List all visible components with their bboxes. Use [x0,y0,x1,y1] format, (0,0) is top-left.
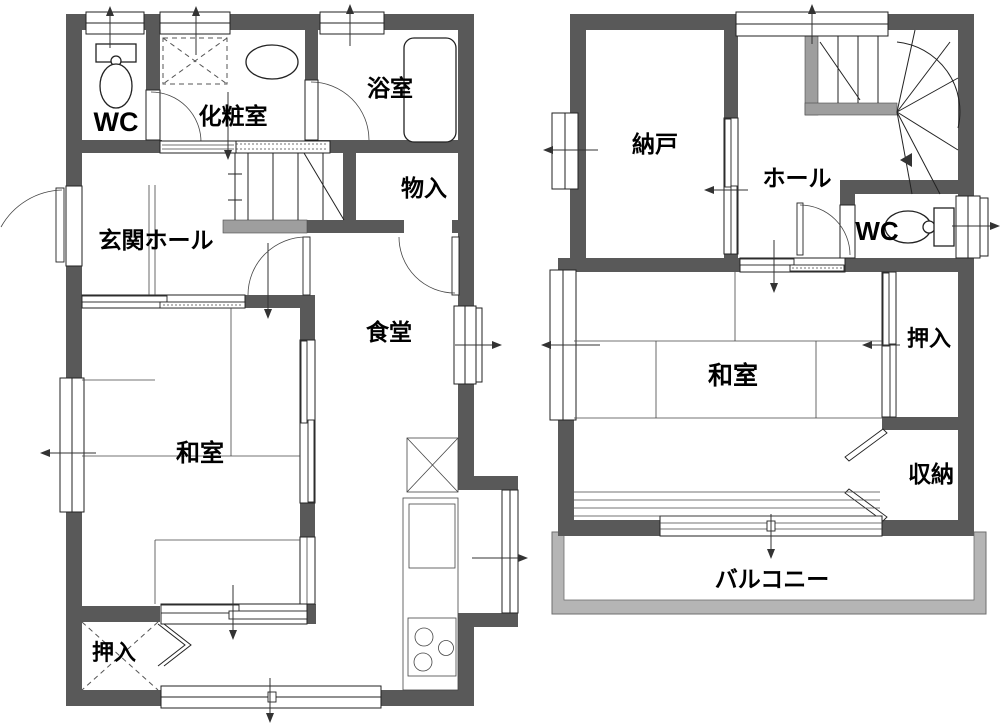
toilet-icon-1f [96,44,136,108]
wc-door-1f [146,90,201,142]
entrance-door [1,186,82,266]
storage-double-door-2f [845,429,887,521]
washitsu-south-sliding [161,604,307,624]
hall-washitsu-sliding-2f [740,258,845,272]
wc-door-2f [797,203,855,258]
room-label-wc-2f: WC [855,216,899,246]
storeroom-sliding-door [724,118,738,254]
room-label-japanese-room-1f: 和室 [176,439,224,467]
sink-icon [246,45,298,79]
bathroom-window [320,12,384,34]
wc-window-2f [956,196,988,258]
hall-washitsu-sliding [82,295,245,308]
refrigerator-space-icon [407,438,458,492]
floor1-labels: WC 化粧室 浴室 物入 玄関ホール 食堂 和室 押入 [92,75,447,665]
room-label-entrance-hall: 玄関ホール [99,227,214,253]
floor2-plan: 納戸 ホール WC 押入 和室 収納 バルコニー [541,4,1000,614]
hall-dining-door [248,237,310,295]
bottom-window-1f [161,686,381,708]
storage-door-1f [399,237,459,295]
washitsu-kitchen-sliding [300,537,315,604]
japanese-room-window-1f [60,378,84,512]
wc-window [86,12,144,34]
tatami-lines-2f [574,272,882,418]
room-label-hall-2f: ホール [763,165,832,191]
room-label-closet-2f: 押入 [907,326,951,351]
floor2-fixtures [574,208,954,516]
room-label-storage-2f: 収納 [908,461,954,487]
room-label-closet-1f: 押入 [92,640,136,665]
room-label-bathroom: 浴室 [367,75,413,101]
closet-bifold-door-1f [158,624,191,666]
washitsu-dining-fusuma [300,340,315,503]
floor-plan-page: WC 化粧室 浴室 物入 玄関ホール 食堂 和室 押入 [0,0,1000,726]
bathroom-door [305,80,369,140]
storeroom-window [552,113,578,189]
washer-pan-icon [163,38,227,84]
room-label-storage-1f: 物入 [401,175,447,201]
room-label-balcony: バルコニー [715,566,830,592]
room-label-storeroom: 納戸 [632,131,678,157]
room-label-japanese-room-2f: 和室 [708,361,758,390]
veranda-boards-2f [574,492,880,516]
stair-landing-1f [223,220,307,233]
stair-wall-2f [805,30,897,115]
floor-plan-drawing: WC 化粧室 浴室 物入 玄関ホール 食堂 和室 押入 [0,0,1000,726]
kitchen-bay-window [502,490,518,613]
kitchen-counter-icon [403,498,458,690]
floor1-plan: WC 化粧室 浴室 物入 玄関ホール 食堂 和室 押入 [1,4,528,723]
room-label-wc-1f: WC [94,107,139,137]
room-label-dining: 食堂 [366,319,412,345]
room-label-powder-room: 化粧室 [199,103,268,129]
